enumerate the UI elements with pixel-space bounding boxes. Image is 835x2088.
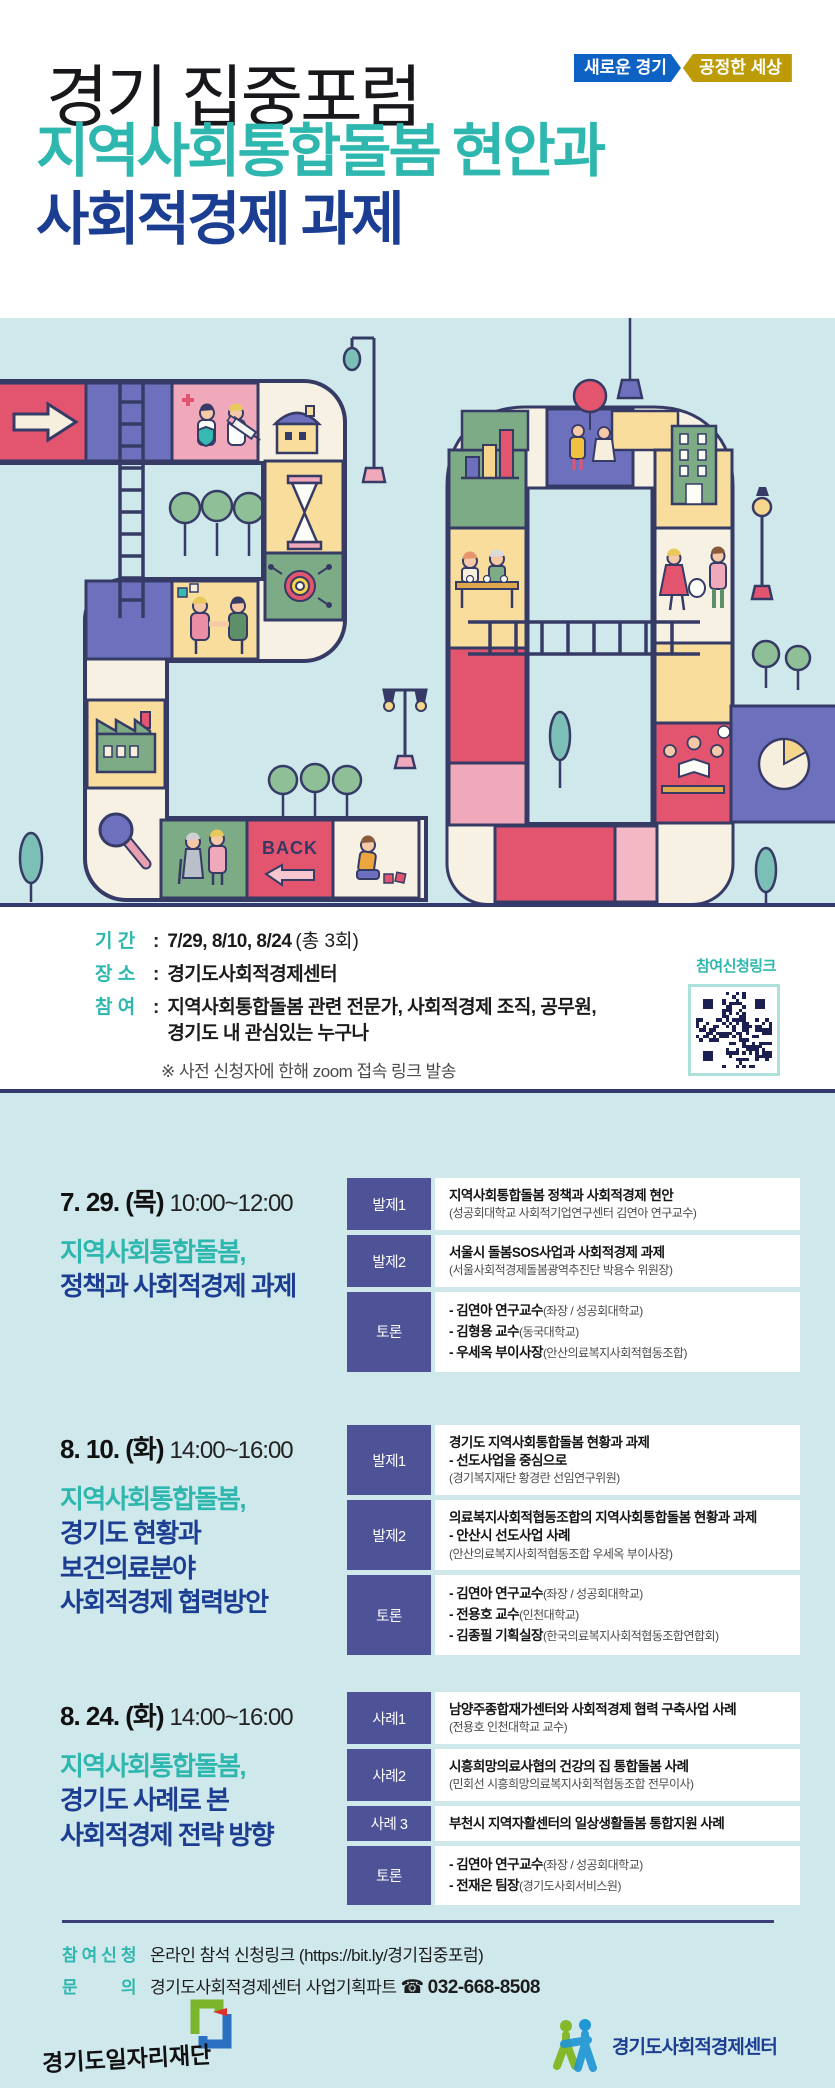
qr-pattern — [696, 992, 772, 1068]
center-logo-text: 경기도사회적경제센터 — [612, 2032, 777, 2059]
info-row-value: 7/29, 8/10, 8/24(총 3회) — [167, 929, 359, 955]
svg-text:BACK: BACK — [262, 838, 318, 858]
session-row-title: 남양주종합재가센터와 사회적경제 협력 구축사업 사례 — [449, 1701, 786, 1719]
session-date: 8. 10. (화)14:00~16:00 — [60, 1429, 347, 1466]
debate-lines: - 김연아 연구교수(좌장 / 성공회대학교)- 전용호 교수(인천대학교)- … — [449, 1584, 786, 1647]
info-row-value: 경기도사회적경제센터 — [167, 962, 337, 988]
gyeonggi-job-foundation-logo: 경기도일자리재단 — [42, 1998, 242, 2083]
session-row-label: 토론 — [347, 1575, 431, 1655]
qr-block: 참여신청링크 — [688, 955, 784, 1076]
slogan-badges: 새로운 경기 공정한 세상 — [574, 54, 792, 82]
trees-icon — [269, 764, 361, 818]
session-row-title: 부천시 지역자활센터의 일상생활돌봄 통합지원 사례 — [449, 1815, 786, 1833]
building-icon — [672, 426, 716, 504]
session-row-title: 지역사회통합돌봄 정책과 사회적경제 현안 — [449, 1187, 786, 1205]
social-economy-center-logo: 경기도사회적경제센터 — [552, 2018, 777, 2072]
session-row-speaker: (민회선 시흥희망의료복지사회적협동조합 전무이사) — [449, 1776, 786, 1793]
session-row-speaker: (성공회대학교 사회적기업연구센터 김연아 연구교수) — [449, 1205, 786, 1222]
job-foundation-logo-text: 경기도일자리재단 — [41, 2036, 212, 2079]
session-row-label: 사례1 — [347, 1692, 431, 1744]
session-block: 7. 29. (목)10:00~12:00지역사회통합돌봄,정책과 사회적경제 … — [60, 1178, 800, 1372]
session-row-speaker: (전용호 인천대학교 교수) — [449, 1719, 786, 1736]
session-table-row: 토론- 김연아 연구교수(좌장 / 성공회대학교)- 전용호 교수(인천대학교)… — [347, 1575, 800, 1655]
session-table: 사례1남양주종합재가센터와 사회적경제 협력 구축사업 사례(전용호 인천대학교… — [347, 1692, 800, 1905]
trees-icon — [170, 491, 264, 556]
contact-text: 경기도사회적경제센터 사업기획파트 — [150, 1973, 396, 1998]
info-row-label: 기 간 — [95, 929, 151, 955]
debate-lines: - 김연아 연구교수(좌장 / 성공회대학교)- 김형용 교수(동국대학교)- … — [449, 1301, 786, 1364]
contact-line: 문의 경기도사회적경제센터 사업기획파트 ☎ 032-668-8508 — [62, 1973, 540, 1999]
session-block: 8. 24. (화)14:00~16:00지역사회통합돌봄,경기도 사례로 본사… — [60, 1692, 800, 1905]
boardgame-svg: BACK — [0, 318, 835, 903]
info-row: 참 여:지역사회통합돌봄 관련 전문가, 사회적경제 조직, 공무원,경기도 내… — [95, 995, 596, 1047]
schedule-section: 7. 29. (목)10:00~12:00지역사회통합돌봄,정책과 사회적경제 … — [0, 1093, 835, 2088]
session-row-label: 발제1 — [347, 1425, 431, 1495]
session-table: 발제1경기도 지역사회통합돌봄 현황과 과제- 선도사업을 중심으로(경기복지재… — [347, 1425, 800, 1655]
session-row-label: 발제2 — [347, 1500, 431, 1570]
debate-lines: - 김연아 연구교수(좌장 / 성공회대학교)- 전재은 팀장(경기도사회서비스… — [449, 1855, 786, 1897]
session-subtitle-navy: 사회적경제 협력방안 — [60, 1585, 347, 1619]
session-table-row: 토론- 김연아 연구교수(좌장 / 성공회대학교)- 김형용 교수(동국대학교)… — [347, 1292, 800, 1372]
session-table-row: 사례2시흥희망의료사협의 건강의 집 통합돌봄 사례(민회선 시흥희망의료복지사… — [347, 1749, 800, 1801]
session-subtitle: 지역사회통합돌봄,경기도 사례로 본사회적경제 전략 방향 — [60, 1749, 347, 1852]
footer-divider — [62, 1920, 774, 1923]
session-subtitle: 지역사회통합돌봄,정책과 사회적경제 과제 — [60, 1235, 347, 1304]
session-row-title: 시흥희망의료사협의 건강의 집 통합돌봄 사례 — [449, 1758, 786, 1776]
session-date: 8. 24. (화)14:00~16:00 — [60, 1696, 347, 1733]
session-row-label: 토론 — [347, 1846, 431, 1905]
info-row-label: 장 소 — [95, 962, 151, 988]
apply-line: 참여신청 온라인 참석 신청링크 (https://bit.ly/경기집중포럼) — [62, 1941, 483, 1966]
session-row-title: 경기도 지역사회통합돌봄 현황과 과제 — [449, 1434, 786, 1452]
info-row-value: 지역사회통합돌봄 관련 전문가, 사회적경제 조직, 공무원,경기도 내 관심있… — [167, 995, 596, 1047]
session-subtitle-teal: 지역사회통합돌봄, — [60, 1749, 347, 1783]
poster: 경기 집중포럼 새로운 경기 공정한 세상 지역사회통합돌봄 현안과 사회적경제… — [0, 0, 835, 2088]
badge-fair-world: 공정한 세상 — [683, 54, 792, 82]
session-subtitle-navy: 사회적경제 전략 방향 — [60, 1818, 347, 1852]
session-row-speaker: (서울사회적경제돌봄광역추진단 박용수 위원장) — [449, 1262, 786, 1279]
info-note: ※ 사전 신청자에 한해 zoom 접속 링크 발송 — [161, 1057, 596, 1082]
center-logo-icon — [552, 2018, 604, 2072]
session-subtitle-teal: 지역사회통합돌봄, — [60, 1235, 347, 1269]
session-table-row: 사례1남양주종합재가센터와 사회적경제 협력 구축사업 사례(전용호 인천대학교… — [347, 1692, 800, 1744]
session-subtitle-navy: 보건의료분야 — [60, 1551, 347, 1585]
qr-code[interactable] — [688, 984, 780, 1076]
session-row-label: 발제2 — [347, 1235, 431, 1287]
info-band: 기 간:7/29, 8/10, 8/24(총 3회)장 소:경기도사회적경제센터… — [0, 903, 835, 1093]
session-table-row: 발제2서울시 돌봄SOS사업과 사회적경제 과제(서울사회적경제돌봄광역추진단 … — [347, 1235, 800, 1287]
session-row-label: 토론 — [347, 1292, 431, 1372]
phone-number[interactable]: 032-668-8508 — [428, 1977, 540, 1999]
session-row-title: 서울시 돌봄SOS사업과 사회적경제 과제 — [449, 1244, 786, 1262]
session-table-row: 발제1지역사회통합돌봄 정책과 사회적경제 현안(성공회대학교 사회적기업연구센… — [347, 1178, 800, 1230]
pie-chart-icon — [759, 739, 809, 789]
apply-text[interactable]: 온라인 참석 신청링크 (https://bit.ly/경기집중포럼) — [150, 1941, 483, 1966]
session-table-row: 발제2의료복지사회적협동조합의 지역사회통합돌봄 현황과 과제- 안산시 선도사… — [347, 1500, 800, 1570]
session-subtitle-navy: 정책과 사회적경제 과제 — [60, 1269, 347, 1303]
phone-icon: ☎ — [400, 1976, 423, 1999]
session-row-speaker: (경기복지재단 황경란 선임연구위원) — [449, 1470, 786, 1487]
qr-label: 참여신청링크 — [688, 955, 784, 976]
info-row-label: 참 여 — [95, 995, 151, 1047]
info-row: 기 간:7/29, 8/10, 8/24(총 3회) — [95, 929, 596, 955]
boardgame-illustration: BACK — [0, 318, 835, 903]
session-subtitle: 지역사회통합돌봄,경기도 현황과보건의료분야사회적경제 협력방안 — [60, 1482, 347, 1619]
session-row-speaker: (안산의료복지사회적협동조합 우세옥 부이사장) — [449, 1546, 786, 1563]
badge-new-gyeonggi: 새로운 경기 — [574, 54, 681, 82]
poster-title-line2: 사회적경제 과제 — [36, 172, 402, 256]
info-rows: 기 간:7/29, 8/10, 8/24(총 3회)장 소:경기도사회적경제센터… — [95, 929, 596, 1082]
session-block: 8. 10. (화)14:00~16:00지역사회통합돌봄,경기도 현황과보건의… — [60, 1425, 800, 1655]
info-row: 장 소:경기도사회적경제센터 — [95, 962, 596, 988]
session-table-row: 토론- 김연아 연구교수(좌장 / 성공회대학교)- 전재은 팀장(경기도사회서… — [347, 1846, 800, 1905]
session-subtitle-teal: 지역사회통합돌봄, — [60, 1482, 347, 1516]
apply-label: 참여신청 — [62, 1941, 136, 1966]
session-table-row: 발제1경기도 지역사회통합돌봄 현황과 과제- 선도사업을 중심으로(경기복지재… — [347, 1425, 800, 1495]
session-row-title: 의료복지사회적협동조합의 지역사회통합돌봄 현황과 과제 — [449, 1509, 786, 1527]
session-table-row: 사례 3부천시 지역자활센터의 일상생활돌봄 통합지원 사례 — [347, 1806, 800, 1841]
session-row-label: 사례 3 — [347, 1806, 431, 1841]
contact-label: 문의 — [62, 1973, 136, 1998]
session-row-title: - 선도사업을 중심으로 — [449, 1452, 786, 1470]
session-subtitle-navy: 경기도 사례로 본 — [60, 1783, 347, 1817]
session-row-label: 발제1 — [347, 1178, 431, 1230]
session-row-label: 사례2 — [347, 1749, 431, 1801]
session-subtitle-navy: 경기도 현황과 — [60, 1516, 347, 1550]
session-row-title: - 안산시 선도사업 사례 — [449, 1527, 786, 1545]
session-table: 발제1지역사회통합돌봄 정책과 사회적경제 현안(성공회대학교 사회적기업연구센… — [347, 1178, 800, 1372]
session-date: 7. 29. (목)10:00~12:00 — [60, 1182, 347, 1219]
